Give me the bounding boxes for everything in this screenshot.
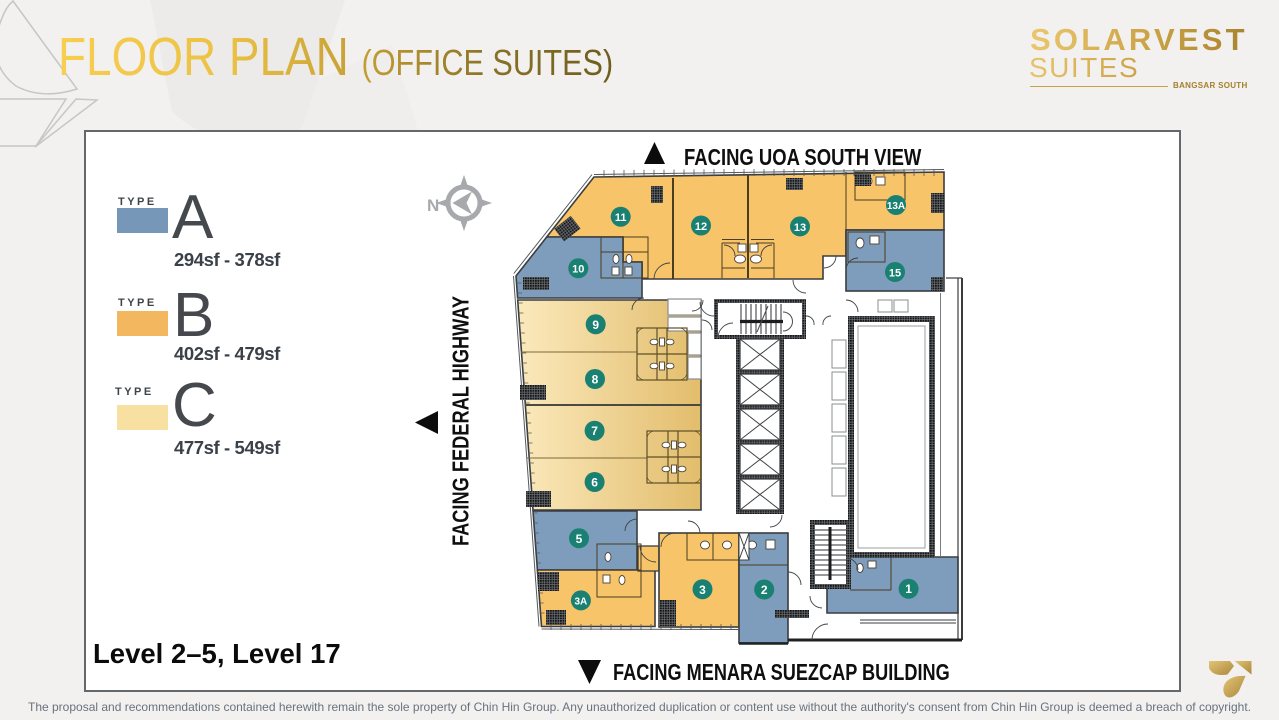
- svg-text:8: 8: [592, 373, 599, 387]
- svg-text:5: 5: [576, 532, 583, 546]
- svg-text:6: 6: [591, 476, 598, 490]
- svg-text:1: 1: [905, 582, 912, 596]
- svg-text:15: 15: [889, 268, 901, 280]
- svg-text:7: 7: [591, 424, 598, 438]
- svg-text:2: 2: [761, 583, 768, 597]
- svg-text:3A: 3A: [575, 597, 588, 608]
- svg-text:10: 10: [572, 264, 584, 276]
- svg-text:9: 9: [592, 318, 599, 332]
- svg-text:11: 11: [615, 212, 627, 224]
- svg-text:12: 12: [695, 221, 707, 233]
- svg-text:3: 3: [699, 583, 706, 597]
- svg-text:N: N: [427, 196, 439, 215]
- svg-text:13: 13: [794, 222, 806, 234]
- svg-text:13A: 13A: [887, 201, 905, 212]
